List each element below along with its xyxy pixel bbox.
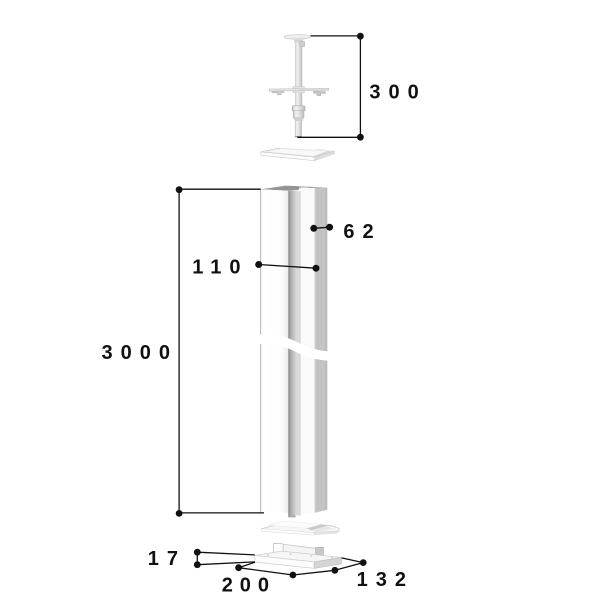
svg-text:17: 17 xyxy=(148,548,186,570)
svg-text:3000: 3000 xyxy=(102,342,179,364)
svg-text:110: 110 xyxy=(192,257,248,279)
svg-text:300: 300 xyxy=(369,81,426,103)
svg-text:132: 132 xyxy=(357,569,414,591)
svg-text:62: 62 xyxy=(343,221,381,243)
svg-text:200: 200 xyxy=(222,574,276,596)
